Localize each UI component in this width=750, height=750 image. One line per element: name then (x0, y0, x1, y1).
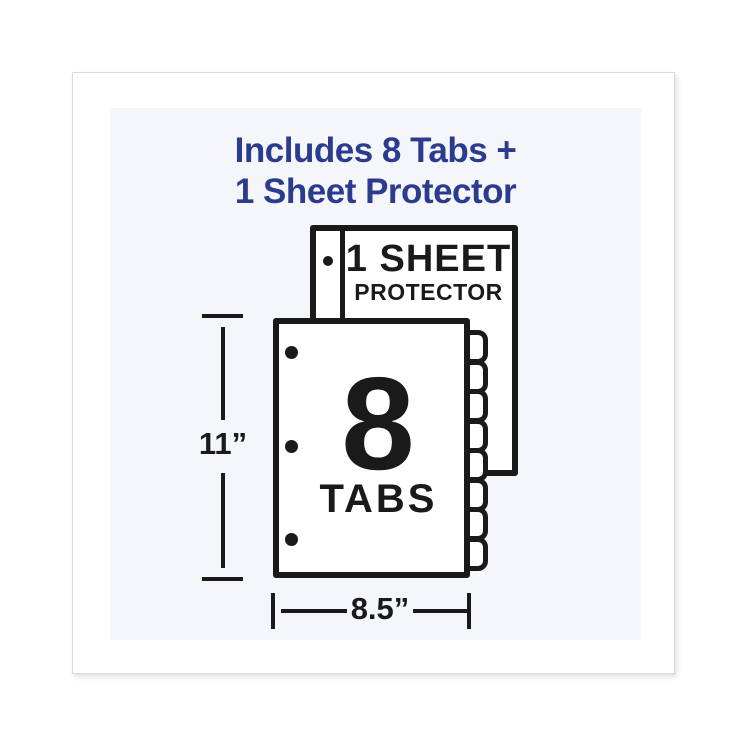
height-dimension-cap-top (202, 314, 243, 318)
width-dimension-label: 8.5” (338, 593, 422, 625)
tab-count-number: 8 (279, 358, 464, 490)
width-dimension-cap-right (467, 593, 471, 629)
divider-sheet: 8 TABS (273, 318, 470, 578)
product-illustration: Includes 8 Tabs + 1 Sheet Protector 1 SH… (0, 0, 750, 750)
height-dimension-label: 11” (190, 428, 256, 460)
height-dimension-line-upper (221, 327, 225, 420)
sheet-protector-label: 1 SHEET PROTECTOR (345, 239, 512, 305)
headline-line2: 1 Sheet Protector (110, 171, 641, 212)
height-dimension-cap-bottom (202, 577, 243, 581)
width-dimension-cap-left (271, 593, 275, 629)
sheet-protector-label-line2: PROTECTOR (345, 279, 512, 305)
sheet-protector-label-line1: 1 SHEET (345, 239, 512, 279)
punch-hole-icon (285, 533, 298, 546)
width-dimension-line-right (413, 609, 468, 613)
headline: Includes 8 Tabs + 1 Sheet Protector (110, 130, 641, 212)
headline-line1: Includes 8 Tabs + (110, 130, 641, 171)
height-dimension-line-lower (221, 473, 225, 568)
punch-hole-icon (323, 256, 333, 266)
tabs-word: TABS (279, 478, 464, 520)
